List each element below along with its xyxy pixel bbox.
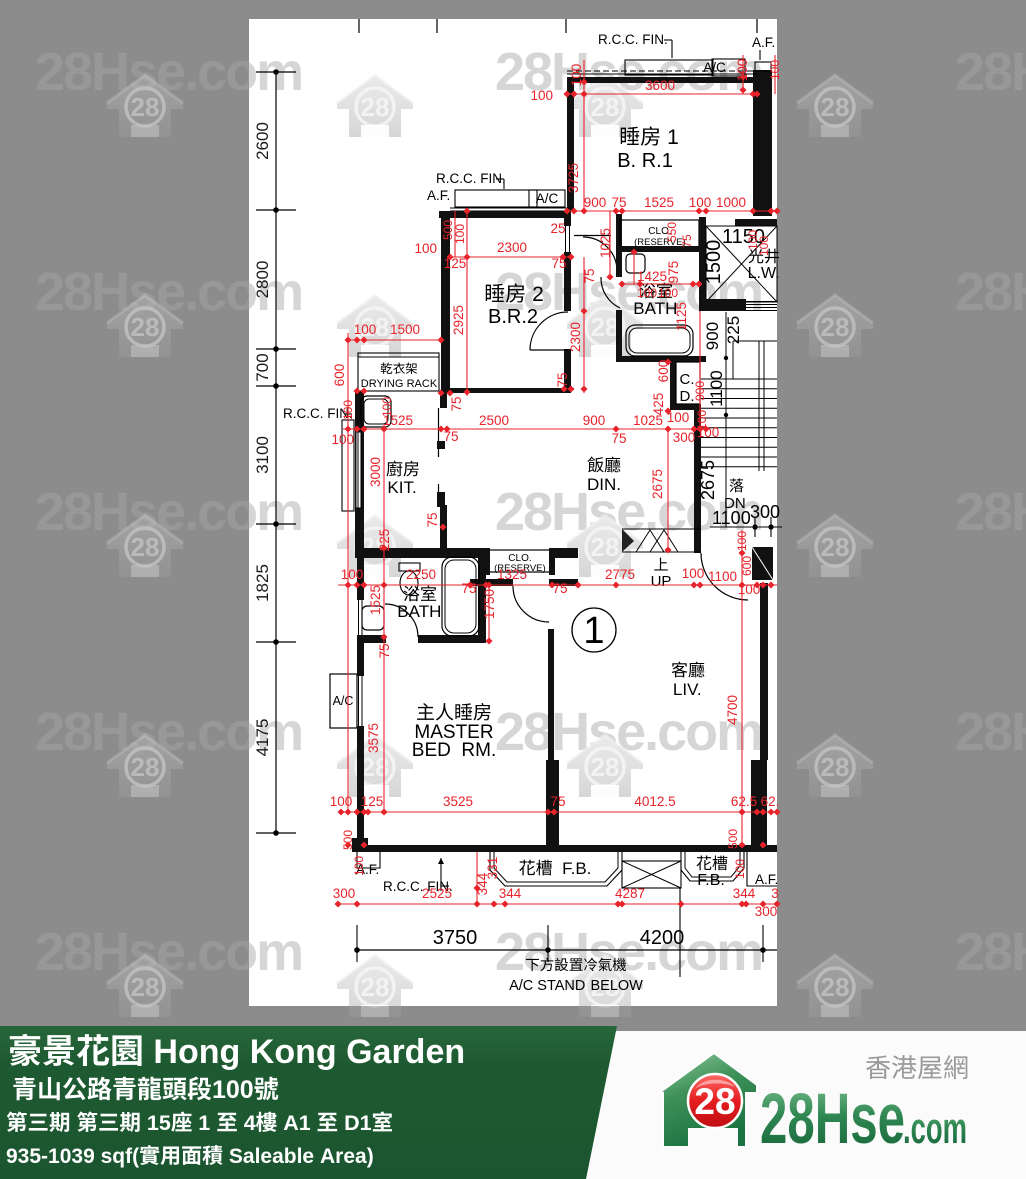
svg-text:100: 100 — [733, 859, 747, 879]
svg-text:344: 344 — [733, 886, 756, 901]
svg-text:R.C.C.: R.C.C. — [283, 406, 324, 421]
svg-text:2: 2 — [532, 283, 544, 306]
svg-text:A/C: A/C — [536, 191, 559, 206]
svg-text:28Hse.com: 28Hse.com — [955, 42, 1026, 102]
svg-text:75: 75 — [444, 429, 459, 444]
svg-text:R.1: R.1 — [642, 150, 673, 172]
svg-text:B.: B. — [617, 150, 636, 172]
svg-text:100: 100 — [738, 582, 761, 597]
svg-text:F.B.: F.B. — [697, 872, 725, 889]
svg-text:1525: 1525 — [383, 413, 413, 428]
svg-text:100: 100 — [735, 531, 749, 551]
svg-text:125: 125 — [361, 794, 384, 809]
svg-text:3600: 3600 — [645, 78, 675, 93]
svg-text:B.R.2: B.R.2 — [488, 306, 538, 328]
svg-text:A/C: A/C — [703, 60, 726, 75]
svg-text:DIN.: DIN. — [587, 475, 621, 494]
svg-text:900: 900 — [703, 322, 722, 350]
svg-text:1125: 1125 — [674, 302, 689, 331]
svg-text:100: 100 — [415, 241, 438, 256]
svg-text:UP: UP — [651, 573, 672, 590]
svg-text:F.B.: F.B. — [562, 859, 591, 878]
svg-text:900: 900 — [584, 195, 607, 210]
svg-text:2300: 2300 — [568, 322, 583, 352]
svg-text:100: 100 — [695, 410, 709, 430]
svg-text:1100: 1100 — [708, 569, 737, 584]
svg-text:R.C.C.: R.C.C. — [383, 879, 424, 894]
svg-text:28: 28 — [821, 752, 850, 782]
svg-text:Saleable: Saleable — [229, 1145, 314, 1168]
svg-text:3750: 3750 — [433, 927, 478, 949]
svg-text:3525: 3525 — [443, 794, 473, 809]
svg-text:100: 100 — [330, 794, 353, 809]
svg-text:28: 28 — [131, 972, 160, 1002]
svg-text:R.C.C.: R.C.C. — [598, 32, 639, 47]
svg-text:75: 75 — [449, 396, 464, 411]
svg-text:4200: 4200 — [640, 927, 685, 949]
svg-text:D1: D1 — [344, 1111, 372, 1135]
svg-text:300: 300 — [673, 430, 696, 445]
svg-text:28Hse.com: 28Hse.com — [955, 702, 1026, 762]
svg-text:3100: 3100 — [253, 436, 272, 474]
svg-text:3725: 3725 — [566, 163, 581, 193]
svg-text:28: 28 — [131, 312, 160, 342]
svg-text:100: 100 — [352, 856, 366, 876]
svg-text:1525: 1525 — [644, 195, 674, 210]
svg-text:28: 28 — [131, 92, 160, 122]
svg-text:28Hse.com: 28Hse.com — [955, 262, 1026, 322]
svg-text:28: 28 — [591, 532, 620, 562]
svg-text:1100: 1100 — [707, 370, 726, 407]
svg-text:28Hse.com: 28Hse.com — [955, 482, 1026, 542]
svg-text:.com: .com — [903, 1104, 967, 1153]
svg-text:600: 600 — [740, 556, 754, 576]
svg-text:1: 1 — [667, 126, 679, 149]
svg-text:28: 28 — [361, 92, 390, 122]
svg-text:28: 28 — [361, 972, 390, 1002]
svg-text:RM.: RM. — [461, 740, 496, 761]
svg-text:25: 25 — [551, 221, 566, 236]
svg-text:900: 900 — [583, 413, 606, 428]
svg-text:100: 100 — [354, 322, 377, 337]
svg-text:331: 331 — [485, 857, 500, 880]
svg-text:3575: 3575 — [366, 723, 381, 753]
svg-text:2800: 2800 — [253, 261, 272, 299]
svg-text:1500: 1500 — [703, 240, 725, 285]
svg-text:28: 28 — [591, 312, 620, 342]
svg-text:75: 75 — [612, 431, 627, 446]
svg-text:1325: 1325 — [497, 567, 527, 582]
svg-text:75: 75 — [553, 581, 568, 596]
svg-text:1100: 1100 — [712, 508, 751, 528]
svg-text:RACK: RACK — [407, 378, 438, 390]
svg-text:100: 100 — [569, 64, 584, 87]
svg-text:3: 3 — [771, 886, 779, 901]
svg-text:28: 28 — [131, 532, 160, 562]
svg-text:900: 900 — [693, 381, 707, 401]
svg-text:KIT.: KIT. — [387, 478, 416, 497]
svg-text:2600: 2600 — [253, 122, 272, 160]
svg-text:28: 28 — [821, 312, 850, 342]
svg-text:100: 100 — [682, 566, 705, 581]
svg-text:Hong: Hong — [153, 1033, 240, 1071]
svg-text:4175: 4175 — [253, 719, 272, 757]
svg-text:100: 100 — [212, 1076, 254, 1104]
svg-text:STAND: STAND — [537, 978, 585, 994]
svg-text:975: 975 — [666, 261, 681, 284]
svg-text:28: 28 — [361, 752, 390, 782]
svg-text:1: 1 — [583, 610, 604, 652]
svg-text:62.: 62. — [761, 794, 780, 809]
svg-text:R.C.C.: R.C.C. — [436, 171, 477, 186]
svg-text:935-1039: 935-1039 — [6, 1145, 95, 1168]
svg-text:2675: 2675 — [698, 460, 718, 500]
svg-text:A.F.: A.F. — [427, 188, 450, 203]
svg-text:100: 100 — [757, 236, 771, 256]
svg-text:DRYING: DRYING — [361, 378, 404, 390]
svg-text:4287: 4287 — [615, 886, 645, 901]
svg-text:2300: 2300 — [497, 240, 527, 255]
svg-text:28Hse: 28Hse — [760, 1080, 905, 1159]
svg-text:2525: 2525 — [422, 886, 452, 901]
svg-text:100: 100 — [531, 88, 554, 103]
svg-text:28: 28 — [591, 752, 620, 782]
svg-text:A.F.: A.F. — [752, 35, 775, 50]
svg-text:sqf(: sqf( — [101, 1145, 140, 1168]
svg-text:BED: BED — [412, 740, 451, 761]
svg-text:FIN.: FIN. — [642, 32, 668, 47]
svg-text:100: 100 — [453, 224, 467, 244]
svg-text:3000: 3000 — [368, 457, 383, 487]
svg-text:75: 75 — [425, 512, 440, 527]
svg-text:550: 550 — [665, 222, 679, 242]
svg-text:1825: 1825 — [253, 564, 272, 602]
svg-text:1500: 1500 — [390, 322, 420, 337]
svg-text:700: 700 — [253, 353, 272, 381]
svg-text:1425: 1425 — [637, 269, 667, 284]
svg-text:L.W.: L.W. — [748, 265, 780, 282]
svg-text:2675: 2675 — [650, 469, 665, 499]
svg-text:2775: 2775 — [605, 567, 635, 582]
svg-text:300: 300 — [755, 904, 778, 919]
svg-text:75: 75 — [551, 794, 566, 809]
svg-text:28: 28 — [131, 752, 160, 782]
svg-text:28: 28 — [821, 972, 850, 1002]
svg-text:600: 600 — [332, 364, 347, 387]
svg-text:LIV.: LIV. — [673, 680, 702, 699]
svg-text:15: 15 — [147, 1111, 171, 1135]
svg-text:62.5: 62.5 — [731, 794, 757, 809]
svg-text:A/C: A/C — [509, 978, 533, 994]
svg-text:28: 28 — [821, 92, 850, 122]
svg-text:75: 75 — [552, 256, 567, 271]
svg-text:75: 75 — [680, 234, 694, 248]
svg-text:1025: 1025 — [598, 228, 613, 258]
svg-text:1000: 1000 — [716, 195, 746, 210]
svg-text:500: 500 — [726, 829, 740, 849]
svg-text:1: 1 — [198, 1111, 210, 1135]
svg-text:2250: 2250 — [406, 567, 436, 582]
svg-text:2500: 2500 — [479, 413, 509, 428]
svg-text:A.F.: A.F. — [755, 872, 778, 887]
svg-text:BATH: BATH — [397, 602, 441, 621]
svg-text:100: 100 — [332, 432, 355, 447]
svg-text:75: 75 — [612, 195, 627, 210]
svg-text:100: 100 — [341, 400, 355, 420]
svg-text:344: 344 — [499, 886, 522, 901]
svg-text:100: 100 — [658, 286, 678, 300]
svg-text:100: 100 — [637, 286, 657, 300]
svg-text:28Hse.com: 28Hse.com — [955, 922, 1026, 982]
svg-text:Garden: Garden — [346, 1033, 465, 1071]
svg-text:75: 75 — [377, 643, 392, 658]
svg-text:75: 75 — [462, 581, 477, 596]
svg-text:300: 300 — [333, 886, 356, 901]
svg-text:100: 100 — [689, 195, 712, 210]
svg-text:28: 28 — [591, 92, 620, 122]
svg-text:BELOW: BELOW — [591, 978, 644, 994]
svg-text:Area): Area) — [320, 1145, 374, 1168]
svg-text:1525: 1525 — [368, 585, 383, 615]
svg-text:4700: 4700 — [725, 695, 740, 725]
svg-text:28: 28 — [821, 532, 850, 562]
svg-text:A/C: A/C — [333, 694, 354, 708]
svg-text:125: 125 — [444, 256, 467, 271]
svg-text:100: 100 — [768, 60, 782, 80]
svg-text:4012.5: 4012.5 — [634, 794, 675, 809]
svg-text:2925: 2925 — [451, 305, 466, 335]
svg-text:BATH: BATH — [633, 299, 677, 318]
svg-text:28: 28 — [694, 1081, 735, 1122]
svg-text:1750: 1750 — [482, 589, 497, 619]
svg-text:4: 4 — [244, 1111, 256, 1135]
svg-text:225: 225 — [724, 316, 743, 344]
svg-text:Kong: Kong — [250, 1033, 337, 1071]
svg-text:A1: A1 — [283, 1111, 311, 1135]
svg-text:75: 75 — [555, 372, 570, 387]
svg-text:425: 425 — [651, 393, 666, 416]
svg-text:100: 100 — [341, 567, 364, 582]
